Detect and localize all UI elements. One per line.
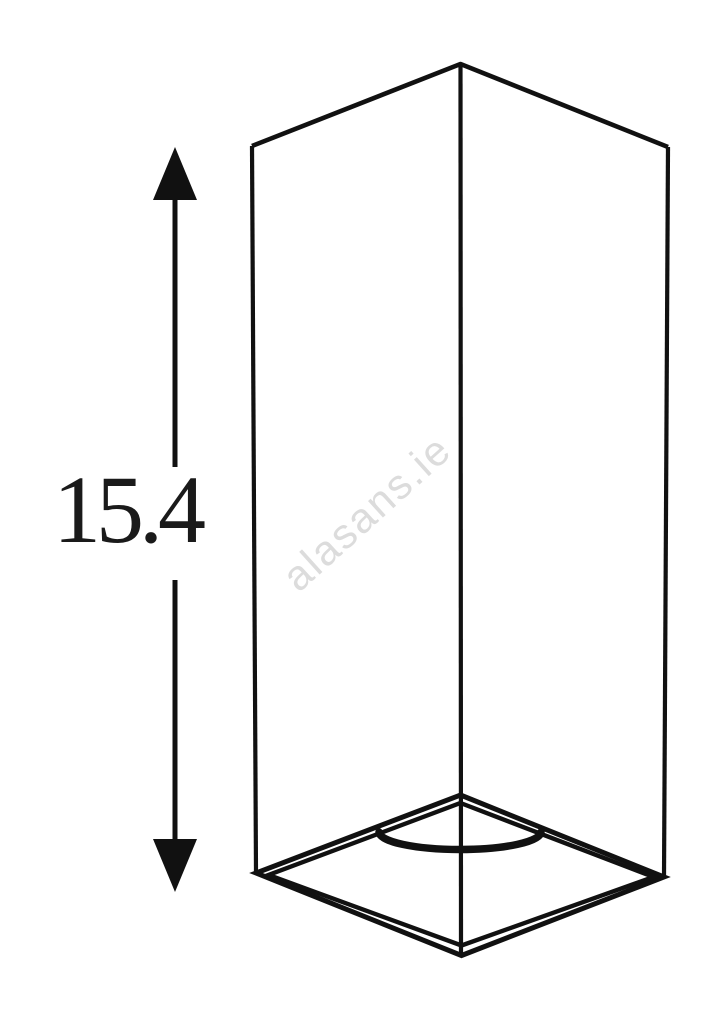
dimension-label: 15.4 [47,462,207,558]
box-right-edge [664,147,668,877]
diagram-canvas: 15.4 alasans.ie [0,0,724,1024]
box-left-edge [252,146,256,873]
box-front-corner-edge [461,64,462,956]
arrowhead-up-icon [153,147,197,200]
arrowhead-down-icon [153,839,197,892]
